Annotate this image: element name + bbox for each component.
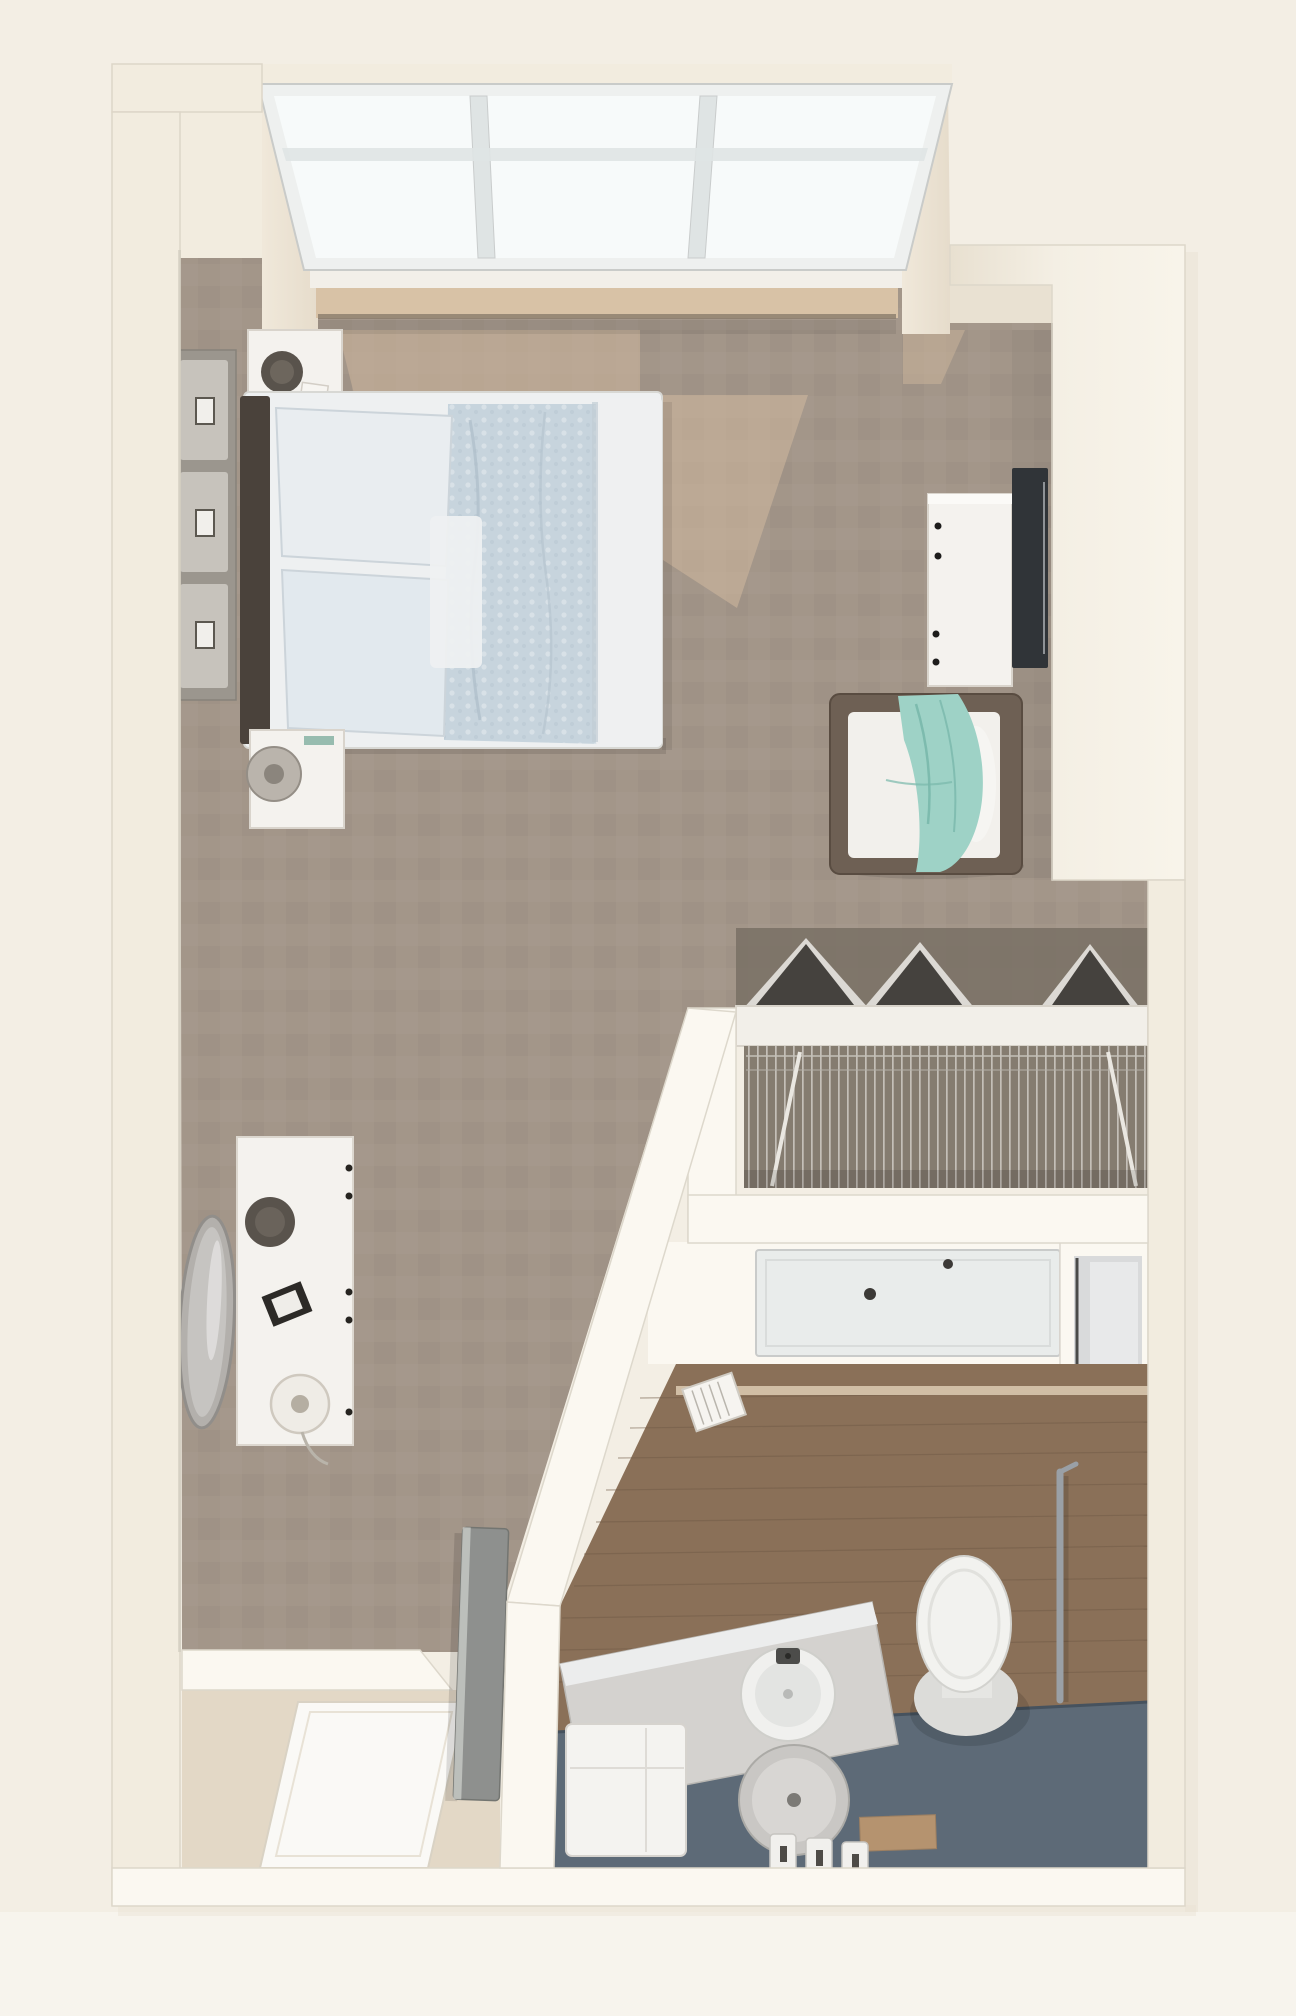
wall-bottom (112, 1868, 1185, 1906)
pillow-top (276, 408, 452, 566)
console-knob-4 (933, 659, 940, 666)
shower-pan (756, 1250, 1060, 1356)
window-sill-wood (316, 288, 898, 318)
wall-face-top-left (180, 112, 262, 258)
console-knob-2 (935, 553, 942, 560)
dresser-knob (346, 1317, 353, 1324)
wall-right-lower (1148, 880, 1185, 1868)
tv-console-top-edge (928, 494, 1012, 504)
wood-threshold-strip (676, 1386, 1148, 1395)
nightstand-lower (247, 730, 344, 828)
window-sill-edge (318, 314, 896, 319)
wall-entry-lower (500, 1602, 560, 1868)
sink-drain-icon (783, 1689, 793, 1699)
headboard (240, 396, 270, 744)
laundry-hamper (566, 1724, 686, 1856)
dresser-knob (346, 1409, 353, 1416)
bay-window-top-band (258, 64, 952, 86)
plant-pot-inner (270, 360, 294, 384)
entry-door (445, 1527, 509, 1803)
wall-closet-bottom (688, 1195, 1148, 1243)
bay-window (258, 64, 952, 270)
wall-left (112, 112, 180, 1905)
shower-drain-icon (864, 1288, 876, 1300)
wall-top-left (112, 64, 262, 112)
chest-handle-3 (196, 622, 214, 648)
tv-console-body (928, 494, 1012, 686)
chest-handle-2 (196, 510, 214, 536)
armchair (830, 694, 1024, 879)
closet-shelf-front (736, 1006, 1148, 1046)
floorplan-canvas (0, 0, 1296, 2016)
exterior-shadow-right (1185, 252, 1198, 1912)
shower-fixture-icon (943, 1259, 953, 1269)
pillow-bottom (282, 570, 448, 736)
bed-shadow-right (662, 402, 672, 750)
window-glass (274, 96, 936, 258)
vanity-stool-center (787, 1793, 801, 1807)
television (1012, 468, 1048, 668)
sun-patch-under-window (338, 330, 640, 394)
wire-shelf-shadow (744, 1170, 1148, 1188)
nightstand-accent (304, 736, 334, 745)
page-background-bottom (0, 1912, 1296, 2016)
window-sill-shadow (318, 320, 896, 334)
desk-lamp-finial (291, 1395, 309, 1413)
wall-shadow-top-right (950, 285, 1052, 323)
toilet-lid (917, 1556, 1011, 1692)
foot-blanket-edge (592, 402, 598, 742)
wire-shelf (744, 1046, 1148, 1188)
wall-left-inner-edge (178, 250, 181, 1652)
chest-handle-1 (196, 398, 214, 424)
console-knob-1 (935, 523, 942, 530)
hat-crown (255, 1207, 285, 1237)
bath-rug (859, 1815, 936, 1852)
dresser-knob (346, 1193, 353, 1200)
tv-console (928, 468, 1048, 686)
window-transom-bar (282, 148, 928, 161)
faucet-spout (785, 1653, 791, 1659)
dresser-knob (346, 1165, 353, 1172)
foot-blanket-fold (596, 398, 662, 746)
table-lamp-finial (264, 764, 284, 784)
drawer-chest (172, 350, 236, 700)
closet (736, 928, 1148, 1188)
floorplan-rendering (0, 0, 1296, 2016)
bed (240, 392, 672, 754)
entry-threshold (182, 1650, 452, 1690)
console-knob-3 (933, 631, 940, 638)
dresser-knob (346, 1289, 353, 1296)
white-throw-strip (430, 516, 482, 668)
canister-1-slot (780, 1846, 787, 1862)
canister-2-slot (816, 1850, 823, 1866)
